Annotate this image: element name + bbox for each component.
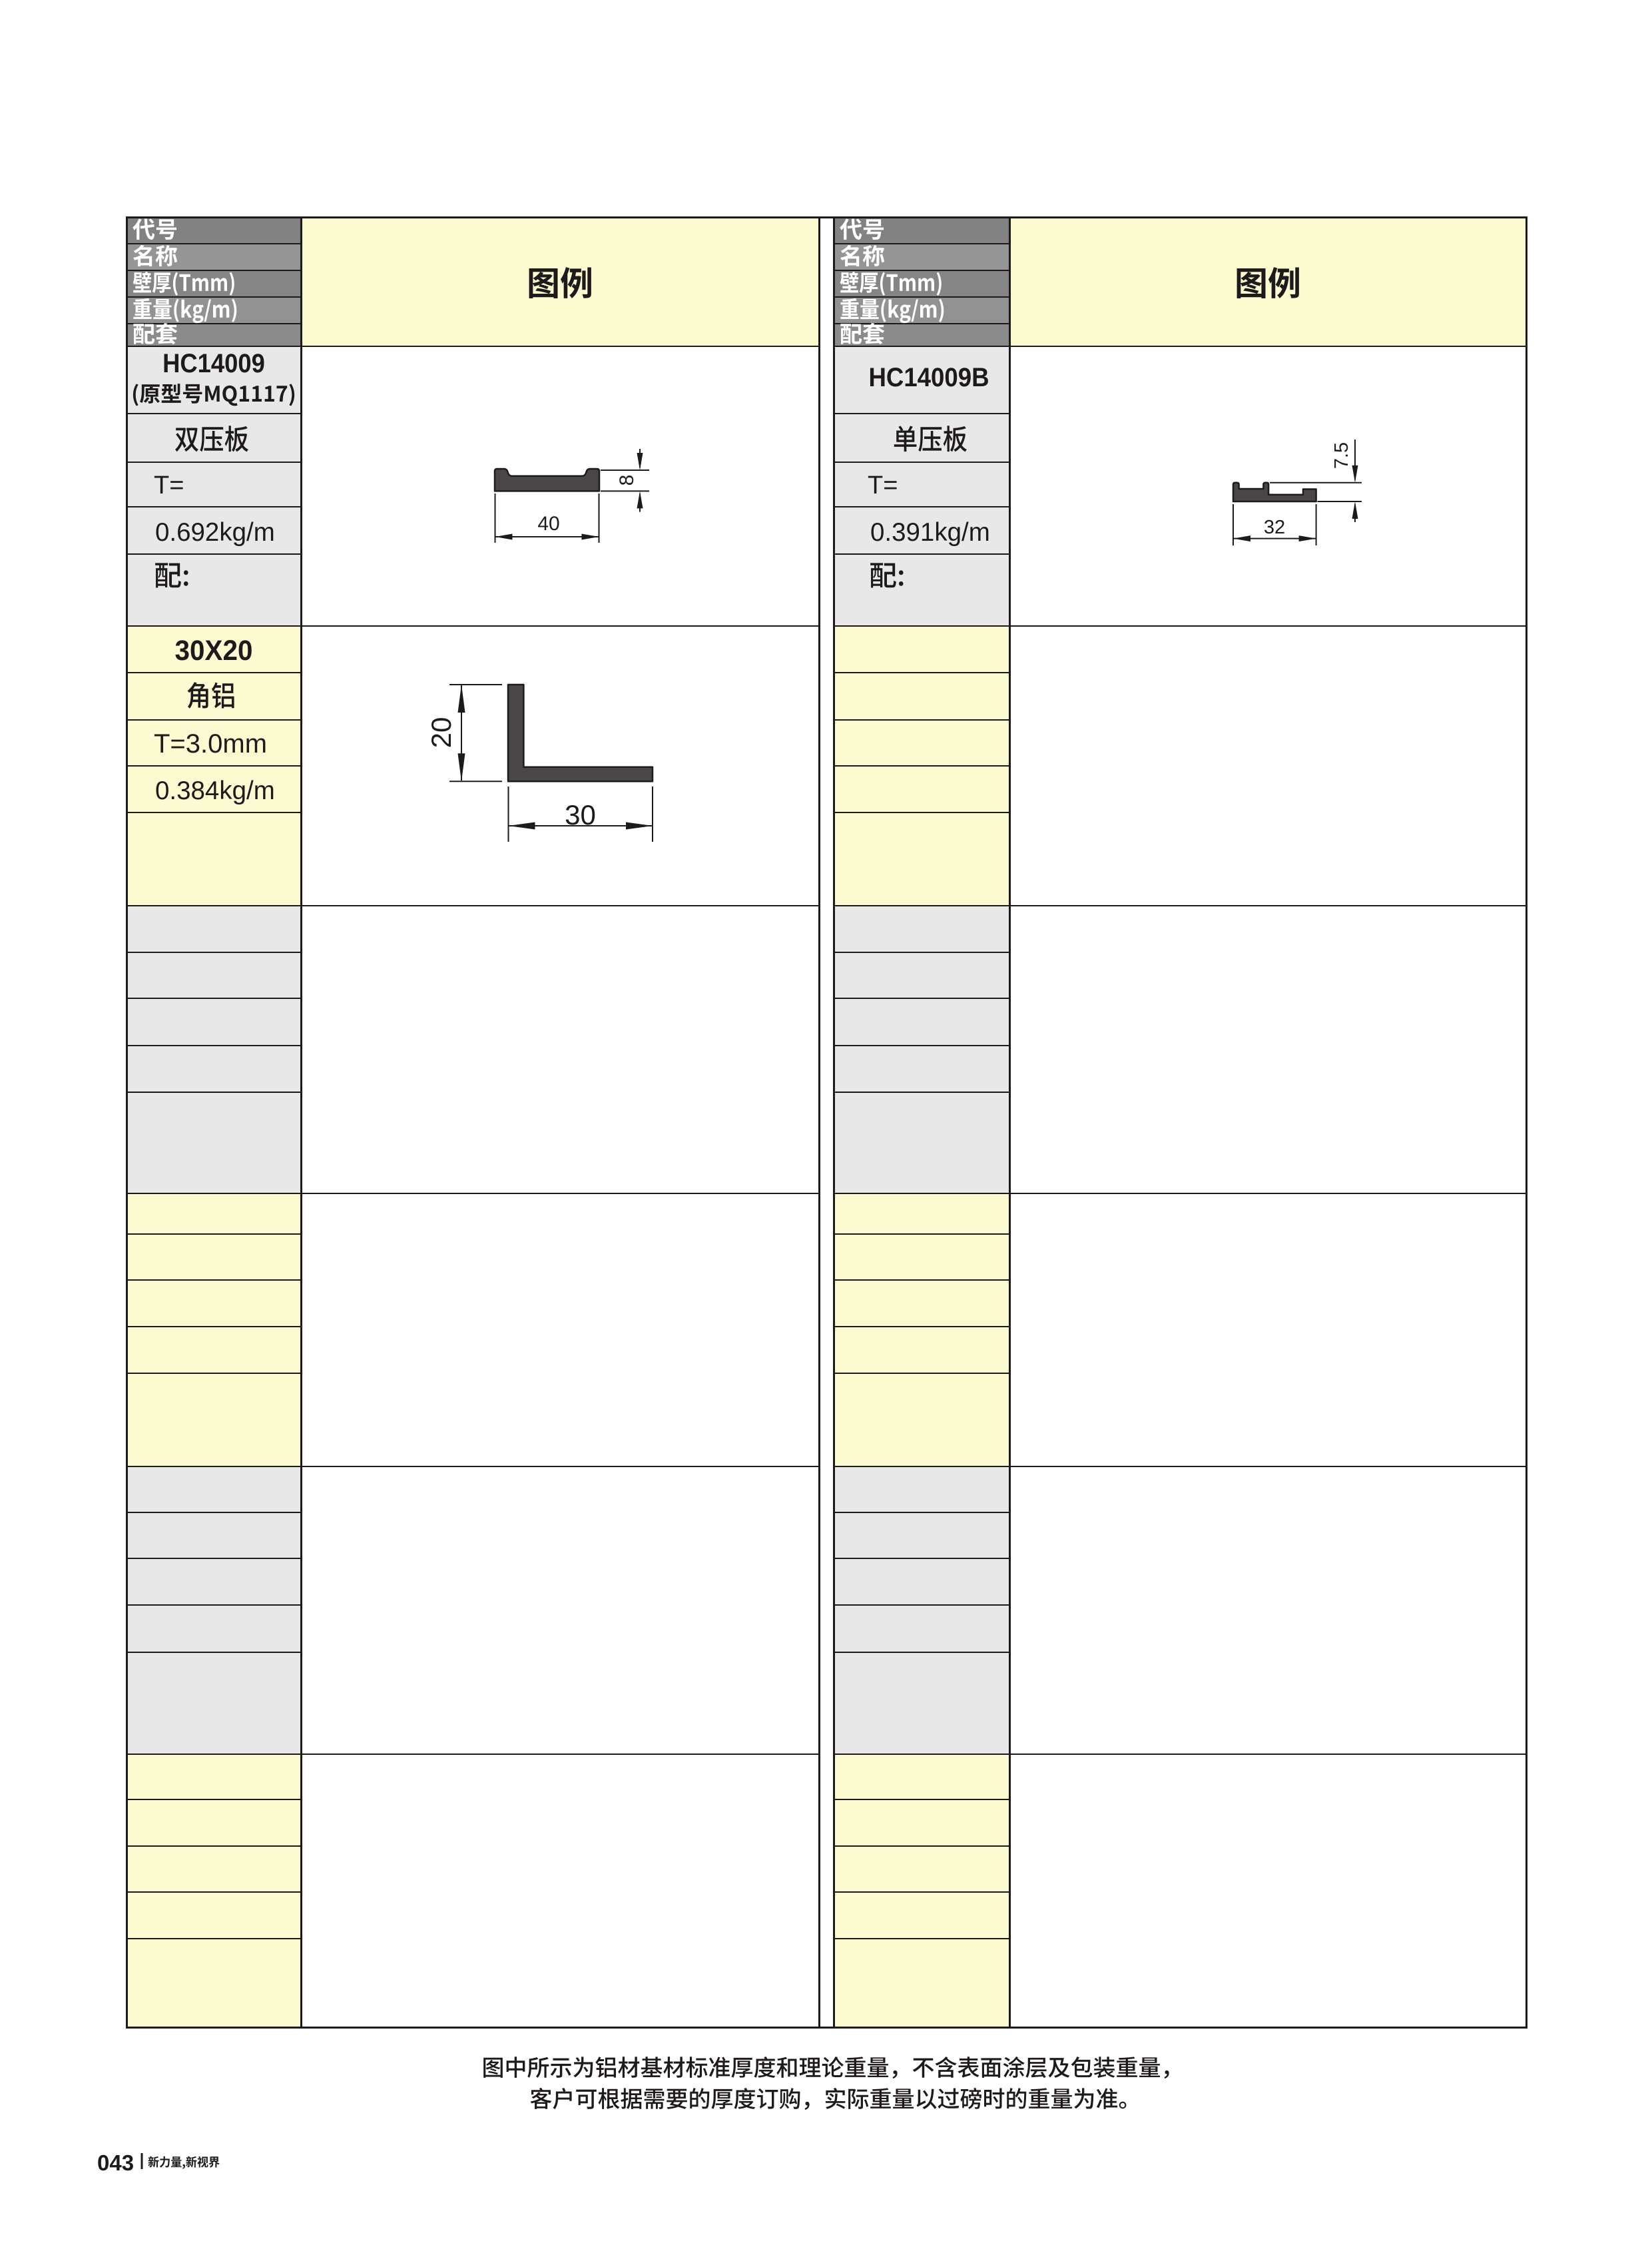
svg-text:32: 32 <box>1264 517 1285 538</box>
svg-text:8: 8 <box>616 475 638 486</box>
svg-text:40: 40 <box>537 513 559 535</box>
svg-text:20: 20 <box>425 717 457 749</box>
svg-text:7.5: 7.5 <box>1331 442 1352 469</box>
svg-text:30: 30 <box>565 799 596 830</box>
